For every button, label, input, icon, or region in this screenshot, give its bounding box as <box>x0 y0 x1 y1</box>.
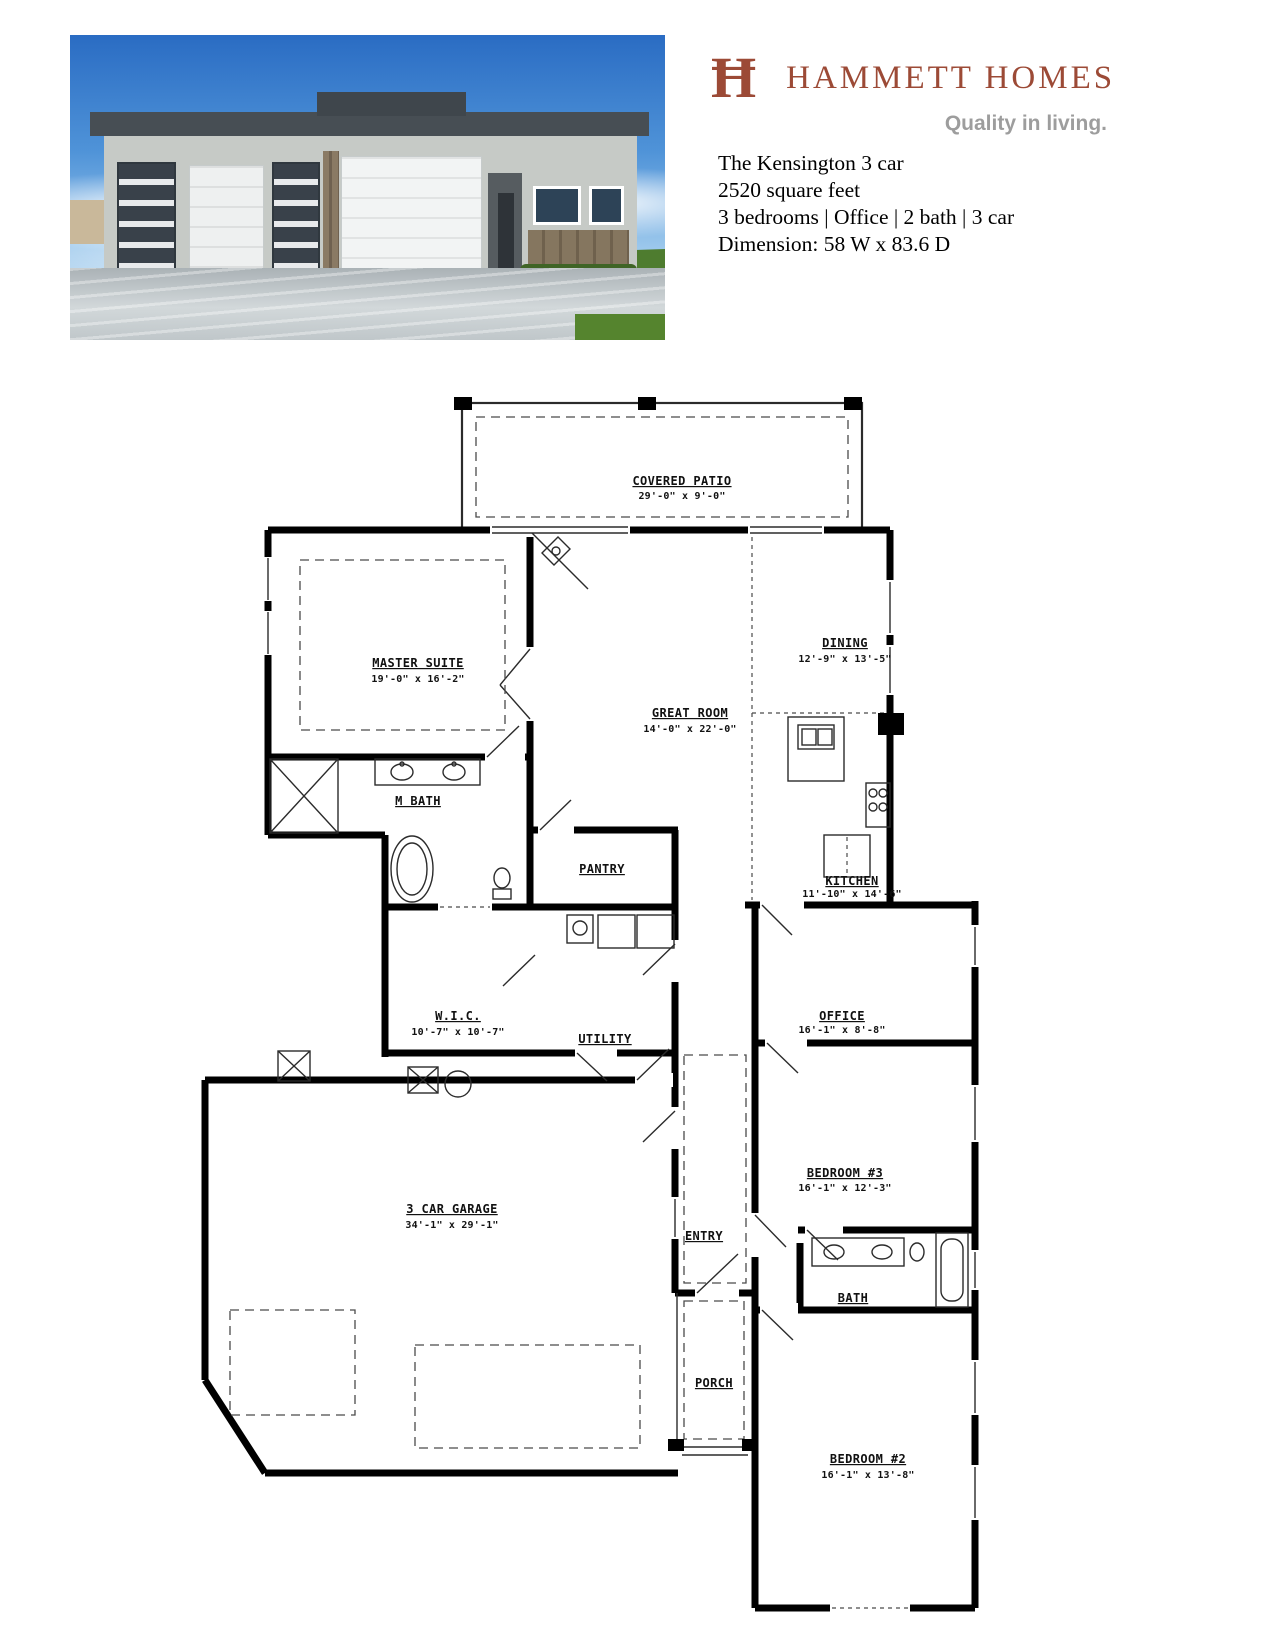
interior-doors <box>485 649 843 1340</box>
photo-stone-pillar <box>323 151 339 270</box>
logo-block: Ħ HAMMETT HOMES Quality in living. <box>703 48 1107 136</box>
label-dining: DINING <box>822 636 868 650</box>
photo-roof-upper <box>317 92 466 116</box>
flyer-page: Ħ HAMMETT HOMES Quality in living. The K… <box>0 0 1275 1650</box>
label-great-room: GREAT ROOM <box>652 706 728 720</box>
label-m-bath: M BATH <box>395 794 441 808</box>
house-photo <box>70 35 665 340</box>
dims-great-room: 14'-0" x 22'-0" <box>643 724 736 735</box>
brand-tagline: Quality in living. <box>703 112 1107 136</box>
photo-slat-door-left <box>117 162 176 270</box>
property-dimension: Dimension: 58 W x 83.6 D <box>718 231 1014 258</box>
dims-garage: 34'-1" x 29'-1" <box>405 1220 498 1231</box>
property-details: The Kensington 3 car 2520 square feet 3 … <box>718 150 1014 258</box>
floorplan-drawing: COVERED PATIO 29'-0" x 9'-0" MASTER SUIT… <box>190 395 1000 1620</box>
photo-garage-door-large <box>341 156 482 270</box>
photo-house-body <box>104 128 637 270</box>
walls <box>205 530 975 1608</box>
dims-covered-patio: 29'-0" x 9'-0" <box>638 491 725 502</box>
property-sqft: 2520 square feet <box>718 177 1014 204</box>
label-bedroom3: BEDROOM #3 <box>807 1166 883 1180</box>
photo-grass-front <box>575 314 665 340</box>
label-entry: ENTRY <box>685 1229 723 1243</box>
dims-dining: 12'-9" x 13'-5" <box>798 654 891 665</box>
label-kitchen: KITCHEN <box>825 874 878 888</box>
photo-entry-recess <box>488 173 523 270</box>
covered-patio-outline <box>454 397 862 530</box>
label-garage: 3 CAR GARAGE <box>406 1202 498 1216</box>
photo-garage-door-small <box>189 165 264 270</box>
dims-kitchen: 11'-10" x 14'-6" <box>802 889 902 900</box>
photo-slat-panel <box>272 162 320 270</box>
dims-master-suite: 19'-0" x 16'-2" <box>371 674 464 685</box>
fixtures <box>270 533 968 1455</box>
label-bedroom2: BEDROOM #2 <box>830 1452 906 1466</box>
property-features: 3 bedrooms | Office | 2 bath | 3 car <box>718 204 1014 231</box>
dims-wic: 10'-7" x 10'-7" <box>411 1027 504 1038</box>
dims-office: 16'-1" x 8'-8" <box>798 1025 885 1036</box>
label-covered-patio: COVERED PATIO <box>632 474 731 488</box>
room-labels: COVERED PATIO 29'-0" x 9'-0" MASTER SUIT… <box>371 474 914 1481</box>
photo-window-1 <box>533 186 581 224</box>
property-name: The Kensington 3 car <box>718 150 1014 177</box>
label-utility: UTILITY <box>578 1032 632 1046</box>
photo-window-2 <box>589 186 624 224</box>
label-pantry: PANTRY <box>579 862 625 876</box>
photo-front-door <box>498 193 514 270</box>
label-office: OFFICE <box>819 1009 865 1023</box>
label-master-suite: MASTER SUITE <box>372 656 464 670</box>
label-porch: PORCH <box>695 1376 733 1390</box>
brand-name: HAMMETT HOMES <box>786 60 1115 97</box>
label-bath: BATH <box>838 1291 869 1305</box>
dims-bedroom2: 16'-1" x 13'-8" <box>821 1470 914 1481</box>
label-wic: W.I.C. <box>435 1009 481 1023</box>
logo-monogram: Ħ <box>703 49 770 107</box>
dims-bedroom3: 16'-1" x 12'-3" <box>798 1183 891 1194</box>
